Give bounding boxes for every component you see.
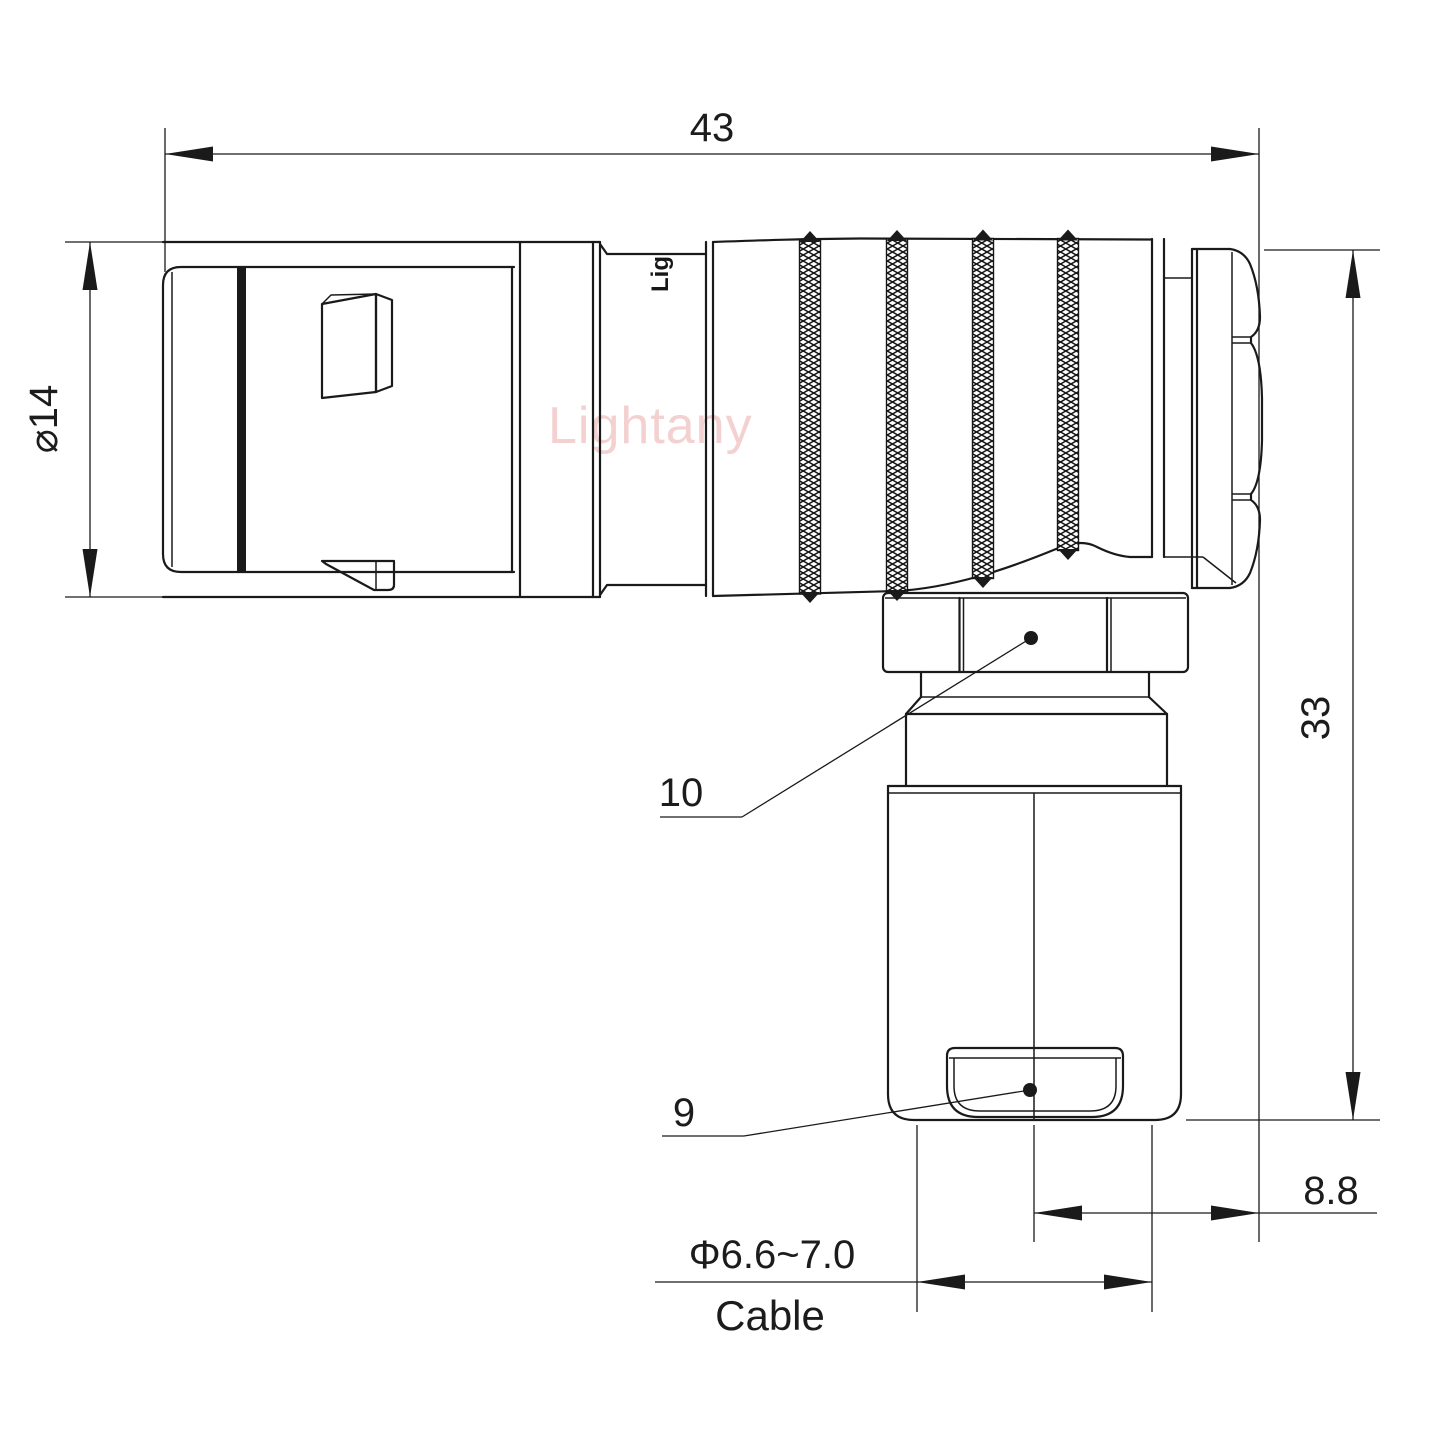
knurl-tip-bottom xyxy=(800,592,820,603)
knurl-tip-top xyxy=(800,231,820,242)
dimension-diameter-14: ⌀14 xyxy=(22,242,98,597)
nose-band xyxy=(237,268,246,572)
knurl-texture xyxy=(1058,239,1079,551)
plug-bottom-notch xyxy=(322,561,394,590)
dimension-cable: Φ6.6~7.0 Cable xyxy=(655,1125,1152,1339)
knurled-shell xyxy=(713,230,1164,604)
ref-9-label: 9 xyxy=(673,1091,695,1135)
arrow-left-icon xyxy=(165,147,213,162)
knurl-tip-bottom xyxy=(887,590,907,601)
sleeve-bottom-edge xyxy=(600,585,706,595)
plug-key xyxy=(322,294,392,398)
drawing-canvas: Lightany xyxy=(0,0,1440,1440)
knurl-tip-bottom xyxy=(1058,549,1078,560)
elbow-body xyxy=(883,593,1188,1120)
dimension-33: 33 xyxy=(1186,250,1380,1120)
flare-right xyxy=(1149,697,1167,714)
elbow-corner-chamfer xyxy=(1203,557,1236,583)
knurl-texture xyxy=(973,239,994,579)
coupling-hex-nut xyxy=(883,593,1188,672)
drawing-page: Lightany xyxy=(0,0,1440,1440)
knurl-tip-top xyxy=(887,230,907,241)
knurl-texture xyxy=(887,239,908,592)
leader-line xyxy=(742,638,1031,817)
arrow-left-icon xyxy=(1034,1206,1082,1221)
arrow-left-icon xyxy=(917,1275,965,1290)
knurl-tip-top xyxy=(1058,230,1078,241)
ref-10-label: 10 xyxy=(659,771,704,815)
cable-caption-label: Cable xyxy=(715,1292,825,1339)
knurl-tip-bottom xyxy=(973,577,993,588)
hex-nut-outline xyxy=(883,593,1188,672)
arrow-down-icon xyxy=(83,549,98,597)
knurl-tip-top xyxy=(973,230,993,241)
body-logo: Lig xyxy=(647,256,674,292)
dim-cable-diameter-label: Φ6.6~7.0 xyxy=(689,1233,855,1277)
arrow-right-icon xyxy=(1211,147,1259,162)
nut-scalloped-profile xyxy=(1230,249,1262,588)
arrow-up-icon xyxy=(1346,250,1361,298)
knurl-band-1 xyxy=(800,231,821,603)
dim-33-label: 33 xyxy=(1294,696,1338,741)
watermark: Lightany xyxy=(548,397,753,455)
back-nut xyxy=(1164,249,1262,588)
notch-outline xyxy=(322,561,394,590)
arrow-right-icon xyxy=(1104,1275,1152,1290)
arrow-up-icon xyxy=(83,242,98,290)
key-front-face xyxy=(322,294,376,398)
plug-nose xyxy=(163,267,514,572)
nose-outline xyxy=(163,267,514,572)
key-side-face xyxy=(376,294,392,392)
cable-clamp-window xyxy=(947,1048,1123,1117)
clamp-inner xyxy=(954,1058,1116,1111)
knurl-band-3 xyxy=(973,230,994,589)
dimension-8-8: 8.8 xyxy=(1034,1125,1377,1242)
shell-taper-bottom xyxy=(713,543,1152,596)
dim-diameter-label: ⌀14 xyxy=(22,385,66,454)
arrow-down-icon xyxy=(1346,1072,1361,1120)
leader-10: 10 xyxy=(659,631,1038,817)
leader-9: 9 xyxy=(662,1083,1037,1136)
dim-8-8-label: 8.8 xyxy=(1303,1169,1359,1213)
knurl-texture xyxy=(800,240,821,594)
knurl-band-4 xyxy=(1058,230,1079,561)
dim-43-label: 43 xyxy=(690,106,735,150)
arrow-right-icon xyxy=(1211,1206,1259,1221)
sleeve-top-edge xyxy=(600,244,706,254)
shell-taper-top xyxy=(713,238,1152,242)
knurl-band-2 xyxy=(887,230,908,601)
